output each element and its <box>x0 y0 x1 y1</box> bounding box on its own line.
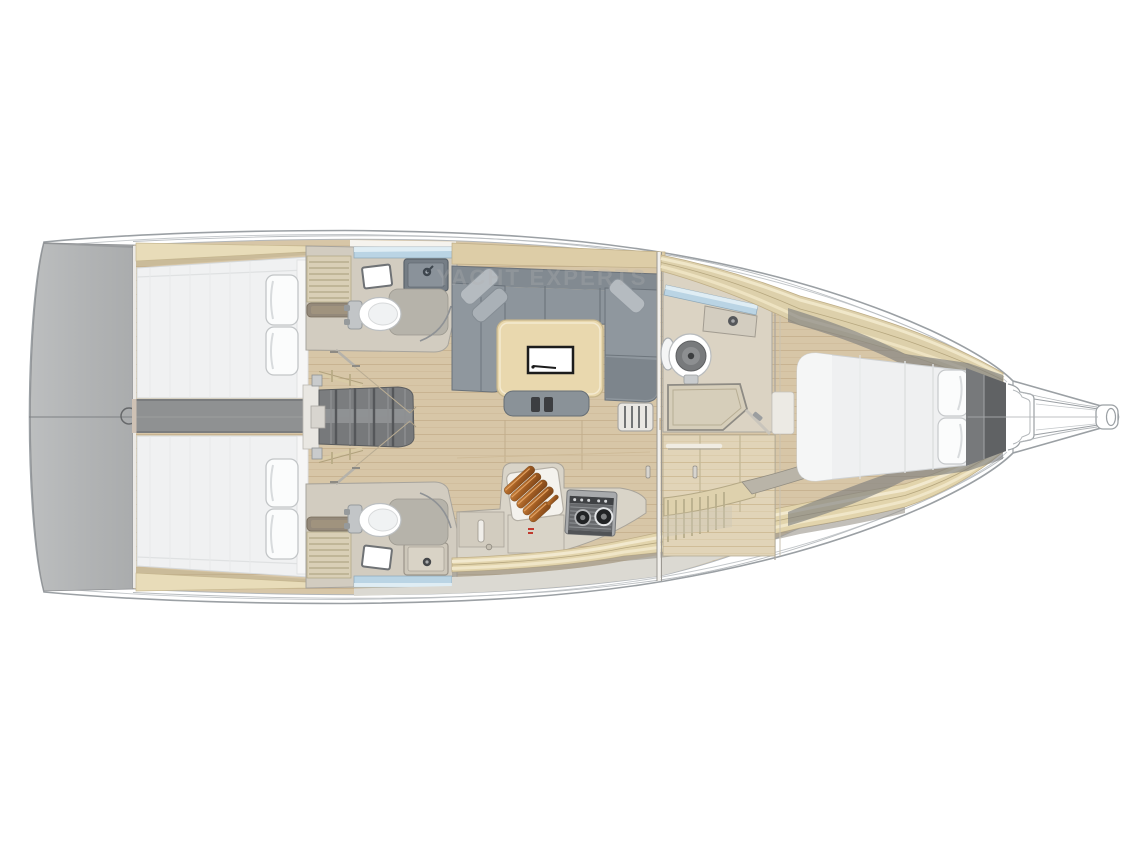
svg-text:YACHT EXPERTS: YACHT EXPERTS <box>436 265 647 290</box>
